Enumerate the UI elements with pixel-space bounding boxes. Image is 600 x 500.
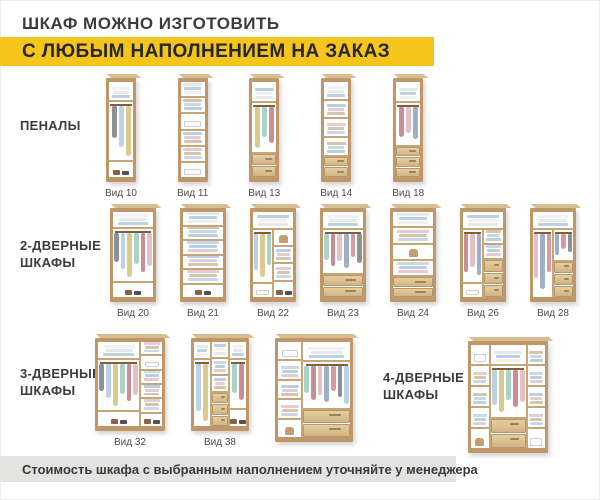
folded-items — [474, 397, 486, 400]
compartment-dr3 — [396, 147, 420, 177]
compartment-shoe — [274, 282, 293, 297]
drawer — [252, 154, 276, 165]
shoes — [122, 171, 129, 175]
folded-items — [118, 222, 148, 225]
garment — [254, 234, 258, 270]
wardrobe-interior — [396, 82, 420, 177]
folded-items — [144, 371, 160, 374]
garment — [269, 107, 274, 143]
shoes — [120, 420, 127, 424]
folded-items — [277, 271, 290, 274]
garment — [311, 366, 316, 400]
folded-items — [398, 221, 428, 224]
compartment-stack — [324, 101, 348, 118]
compartment-columns — [194, 342, 246, 426]
folded-items — [188, 220, 218, 223]
wardrobe-body — [393, 78, 423, 182]
compartment-linen — [396, 82, 420, 101]
folded-items — [281, 374, 298, 377]
garment — [304, 366, 309, 393]
garment — [357, 234, 362, 263]
storage-box — [145, 362, 159, 367]
folded-items — [397, 213, 428, 216]
compartment-hang — [396, 103, 420, 145]
folded-items — [187, 270, 218, 273]
four-door-row — [468, 341, 548, 453]
compartment-hang — [463, 230, 482, 282]
page-title: ШКАФ МОЖНО ИЗГОТОВИТЬ — [22, 14, 280, 34]
compartment-stack — [471, 366, 489, 385]
garment — [106, 364, 111, 398]
compartment-linen — [109, 82, 133, 100]
column — [324, 82, 348, 177]
folded-items — [184, 152, 200, 155]
column — [303, 342, 350, 437]
drawer — [324, 167, 348, 177]
compartment-stack — [471, 408, 489, 427]
compartment-dr2 — [323, 275, 363, 297]
compartment-linen — [212, 342, 228, 357]
wardrobe-vid-13: Вид 13 — [248, 78, 280, 199]
compartment-bag — [274, 230, 293, 245]
compartment-linen — [323, 212, 363, 228]
garment — [121, 233, 126, 269]
hanging-clothes — [110, 106, 132, 158]
compartment-linen — [303, 342, 350, 360]
compartment-stack — [274, 247, 293, 262]
folded-items — [189, 230, 216, 233]
compartment-linen — [324, 82, 348, 99]
drawer — [554, 274, 573, 285]
folded-items — [327, 86, 346, 89]
folded-items — [187, 212, 218, 215]
hanging-clothes — [114, 233, 152, 279]
storage-box — [184, 121, 200, 127]
compartment-hang — [109, 102, 133, 160]
folded-items — [486, 245, 501, 248]
compartment-stack — [181, 98, 205, 112]
garment — [520, 370, 525, 402]
storage-box — [474, 354, 486, 362]
compartment-shoe — [113, 283, 153, 297]
column — [274, 230, 293, 298]
compartment-box — [463, 284, 482, 297]
folded-items — [281, 413, 298, 416]
drawer — [212, 416, 228, 426]
folded-items — [282, 370, 298, 373]
column — [212, 342, 228, 426]
drawer — [212, 404, 228, 414]
folded-items — [486, 230, 501, 233]
wardrobe-vid-22: Вид 22 — [250, 208, 296, 319]
folded-items — [144, 399, 160, 402]
wardrobe-interior — [278, 342, 350, 437]
compartment-dr3 — [554, 262, 573, 297]
folded-items — [281, 385, 299, 388]
folded-items — [103, 345, 135, 348]
hanging-clothes — [492, 370, 525, 414]
garment — [413, 107, 418, 139]
garment — [203, 364, 208, 421]
drawer — [396, 147, 420, 156]
garment — [337, 234, 342, 261]
wardrobe-view-label: Вид 14 — [320, 188, 352, 199]
compartment-bag — [471, 429, 489, 448]
garment — [477, 234, 481, 276]
shoes — [153, 420, 160, 424]
compartment-columns — [323, 212, 363, 297]
folded-items — [399, 88, 418, 91]
compartment-stack — [278, 381, 301, 398]
drawer — [484, 273, 503, 285]
shoes — [285, 291, 292, 295]
compartment-hang — [491, 366, 526, 416]
folded-items — [188, 234, 218, 237]
compartment-linen — [194, 342, 210, 358]
folded-items — [215, 365, 226, 368]
garment — [120, 364, 125, 394]
compartment-linen — [183, 212, 223, 225]
folded-items — [258, 223, 288, 226]
compartment-stack — [278, 400, 301, 417]
highlight-banner: С ЛЮБЫМ НАПОЛНЕНИЕМ НА ЗАКАЗ — [0, 37, 434, 66]
wardrobe-vid-20: Вид 20 — [110, 208, 156, 319]
folded-items — [281, 393, 298, 396]
wardrobe-body — [178, 78, 208, 182]
wardrobe-view-label: Вид 11 — [177, 188, 208, 199]
folded-items — [282, 409, 298, 412]
wardrobe-vid-32: Вид 32 — [95, 338, 165, 448]
folded-items — [214, 369, 226, 372]
garment — [561, 234, 565, 249]
hanging-clothes — [464, 234, 481, 280]
folded-items — [233, 349, 244, 352]
compartment-stack — [183, 270, 223, 283]
garment — [331, 234, 336, 265]
folded-items — [329, 219, 356, 222]
folded-items — [328, 127, 344, 130]
garment — [331, 366, 336, 391]
folded-items — [105, 349, 133, 352]
drawer — [484, 285, 503, 297]
folded-items — [214, 361, 226, 364]
garment — [547, 234, 551, 272]
compartment-stack — [324, 138, 348, 155]
folded-items — [328, 223, 358, 226]
folded-items — [473, 414, 487, 417]
compartment-stack — [183, 256, 223, 269]
drawer — [396, 168, 420, 177]
wardrobe-interior — [113, 212, 153, 297]
folded-items — [496, 355, 520, 358]
compartment-stack — [278, 361, 301, 378]
compartment-bag — [278, 420, 301, 437]
drawer — [491, 419, 526, 433]
folded-items — [400, 92, 416, 95]
hanging-clothes — [231, 364, 245, 407]
folded-items — [183, 132, 202, 135]
drawer — [393, 277, 433, 286]
wardrobe-vid-11: Вид 11 — [177, 78, 208, 199]
drawer — [396, 157, 420, 166]
compartment-hang — [98, 360, 139, 410]
folded-items — [328, 108, 344, 111]
handbag — [475, 438, 484, 446]
wardrobe-view-label: Вид 28 — [537, 308, 569, 319]
garment — [406, 107, 411, 133]
folded-items — [232, 345, 244, 348]
folded-items — [144, 385, 160, 388]
wardrobe-interior — [393, 212, 433, 297]
folded-items — [276, 267, 291, 270]
garment — [568, 234, 572, 253]
compartment-columns — [253, 230, 293, 298]
hanging-clothes — [324, 234, 362, 271]
folded-items — [327, 215, 358, 218]
folded-items — [112, 95, 130, 98]
wardrobe-interior — [463, 212, 503, 297]
folded-items — [529, 372, 543, 375]
folded-items — [487, 249, 500, 252]
compartment-hang — [252, 103, 276, 152]
folded-items — [183, 83, 202, 86]
column — [393, 212, 433, 297]
garment — [555, 234, 559, 256]
column — [323, 212, 363, 297]
compartment-linen — [181, 82, 205, 96]
folded-items — [188, 249, 218, 252]
compartment-linen — [253, 212, 293, 228]
wardrobe-vid-14: Вид 14 — [320, 78, 352, 199]
drawer — [303, 424, 350, 437]
wardrobe-vid-21: Вид 21 — [180, 208, 226, 319]
wardrobe-body — [95, 338, 165, 431]
wardrobe-view-label: Вид 13 — [248, 188, 280, 199]
folded-items — [112, 87, 131, 90]
two-door-row: Вид 20Вид 21Вид 22Вид 23Вид 24Вид 26Вид … — [110, 208, 576, 319]
column — [528, 345, 546, 448]
garment — [267, 234, 271, 265]
hanging-clothes — [397, 107, 419, 143]
hanging-clothes — [195, 364, 209, 424]
wardrobe-body — [249, 78, 279, 182]
garment — [114, 233, 119, 262]
garment — [499, 370, 504, 412]
folded-items — [538, 223, 568, 226]
compartment-stack — [471, 387, 489, 406]
compartment-stack — [181, 131, 205, 145]
garment — [196, 364, 201, 411]
compartment-box — [471, 345, 489, 364]
folded-items — [189, 274, 216, 277]
column — [113, 212, 153, 297]
wardrobe-interior — [533, 212, 573, 297]
folded-items — [197, 349, 208, 352]
folded-items — [188, 263, 218, 266]
drawer — [484, 260, 503, 272]
folded-items — [196, 345, 208, 348]
column — [230, 342, 246, 426]
wardrobe-interior — [109, 82, 133, 177]
folded-items — [530, 359, 543, 362]
compartment-columns — [324, 82, 348, 177]
folded-items — [189, 216, 216, 219]
storage-box — [466, 290, 479, 295]
wardrobe-body — [321, 78, 351, 182]
garment — [133, 364, 138, 396]
garment — [112, 106, 117, 138]
wardrobe-vid-38: Вид 38 — [191, 338, 249, 448]
handbag — [285, 427, 294, 435]
storage-box — [256, 290, 269, 295]
wardrobe-body — [460, 208, 506, 302]
wardrobe-body — [110, 208, 156, 302]
folded-items — [473, 372, 487, 375]
wardrobe-body — [468, 341, 548, 453]
hanging-clothes — [304, 366, 349, 406]
folded-items — [469, 219, 496, 222]
garment — [126, 106, 131, 155]
compartment-columns — [181, 82, 205, 177]
wardrobe-row4-item1 — [468, 341, 548, 453]
compartment-shoe — [183, 285, 223, 298]
folded-items — [214, 344, 226, 347]
folded-items — [311, 351, 343, 354]
folded-items — [486, 238, 500, 241]
garment — [318, 366, 323, 395]
garment — [113, 364, 118, 406]
folded-items — [398, 238, 428, 241]
folded-items — [282, 389, 298, 392]
wardrobe-view-label: Вид 20 — [117, 308, 149, 319]
folded-items — [399, 96, 417, 99]
folded-items — [467, 215, 498, 218]
wardrobe-interior — [324, 82, 348, 177]
compartment-stack — [274, 264, 293, 279]
compartment-hang — [533, 230, 552, 298]
wardrobe-view-label: Вид 22 — [257, 308, 289, 319]
folded-items — [486, 253, 500, 256]
folded-items — [327, 123, 346, 126]
folded-items — [144, 378, 159, 381]
compartment-box — [528, 429, 546, 448]
folded-items — [183, 148, 202, 151]
garment — [232, 364, 237, 393]
compartment-shoe — [230, 410, 246, 426]
wardrobe-view-label: Вид 18 — [392, 188, 424, 199]
column — [463, 230, 482, 298]
wardrobe-interior — [471, 345, 545, 448]
compartment-columns — [113, 212, 153, 297]
compartment-columns — [463, 230, 503, 298]
compartment-stack — [484, 245, 503, 258]
garment — [324, 366, 329, 402]
garment — [344, 366, 349, 404]
compartment-hang — [113, 229, 153, 281]
folded-items — [281, 405, 299, 408]
folded-items — [530, 418, 542, 421]
folded-items — [214, 352, 226, 355]
folded-items — [276, 275, 290, 278]
folded-items — [255, 88, 274, 91]
hanging-clothes — [253, 107, 275, 150]
compartment-columns — [471, 345, 545, 448]
compartment-columns — [109, 82, 133, 177]
folded-items — [257, 215, 288, 218]
footer-note: Стоимость шкафа с выбранным наполнением … — [0, 462, 478, 477]
folded-items — [397, 262, 428, 265]
column — [471, 345, 489, 448]
compartment-stack — [324, 119, 348, 136]
shoes — [230, 419, 237, 424]
garment — [119, 106, 124, 147]
folded-items — [188, 278, 218, 281]
folded-items — [113, 91, 129, 94]
garment — [99, 364, 104, 391]
wardrobe-vid-28: Вид 28 — [530, 208, 576, 319]
folded-items — [399, 266, 426, 269]
compartment-linen — [533, 212, 573, 228]
folded-items — [327, 104, 346, 107]
folded-items — [276, 257, 290, 260]
folded-items — [189, 259, 216, 262]
compartment-linen — [463, 212, 503, 228]
wardrobe-interior — [194, 342, 246, 426]
wardrobe-interior — [183, 212, 223, 297]
compartment-stack — [393, 228, 433, 242]
compartment-shoe — [141, 414, 162, 426]
folded-items — [328, 90, 344, 93]
compartment-stack — [141, 371, 162, 383]
compartment-stack — [183, 227, 223, 240]
folded-items — [145, 389, 159, 392]
folded-items — [103, 353, 134, 356]
folded-items — [144, 342, 160, 345]
wardrobe-body — [250, 208, 296, 302]
folded-items — [214, 386, 226, 389]
compartment-stack — [528, 366, 546, 385]
drawer — [252, 166, 276, 177]
shoes — [195, 290, 202, 295]
wardrobe-view-label: Вид 38 — [204, 437, 236, 448]
folded-items — [529, 414, 543, 417]
compartment-shoe — [109, 162, 133, 177]
folded-items — [196, 353, 208, 356]
folded-items — [184, 140, 202, 143]
drawer — [303, 410, 350, 423]
section-label-2-door: 2-ДВЕРНЫЕ ШКАФЫ — [20, 238, 114, 272]
folded-items — [276, 249, 291, 252]
section-label-penals: ПЕНАЛЫ — [20, 118, 81, 135]
folded-items — [184, 107, 202, 110]
compartment-stack — [528, 408, 546, 427]
wardrobe-vid-10: Вид 10 — [105, 78, 137, 199]
folded-items — [117, 214, 148, 217]
wardrobe-body — [390, 208, 436, 302]
compartment-stack — [393, 261, 433, 275]
folded-items — [214, 378, 226, 381]
compartment-linen — [113, 212, 153, 227]
garment — [147, 233, 152, 266]
compartment-linen — [98, 342, 139, 358]
compartment-dr2 — [491, 419, 526, 448]
storage-box — [530, 438, 542, 446]
garment — [470, 234, 474, 267]
column — [554, 230, 573, 298]
compartment-dr2 — [303, 410, 350, 437]
garment — [534, 234, 538, 278]
folded-items — [530, 397, 542, 400]
